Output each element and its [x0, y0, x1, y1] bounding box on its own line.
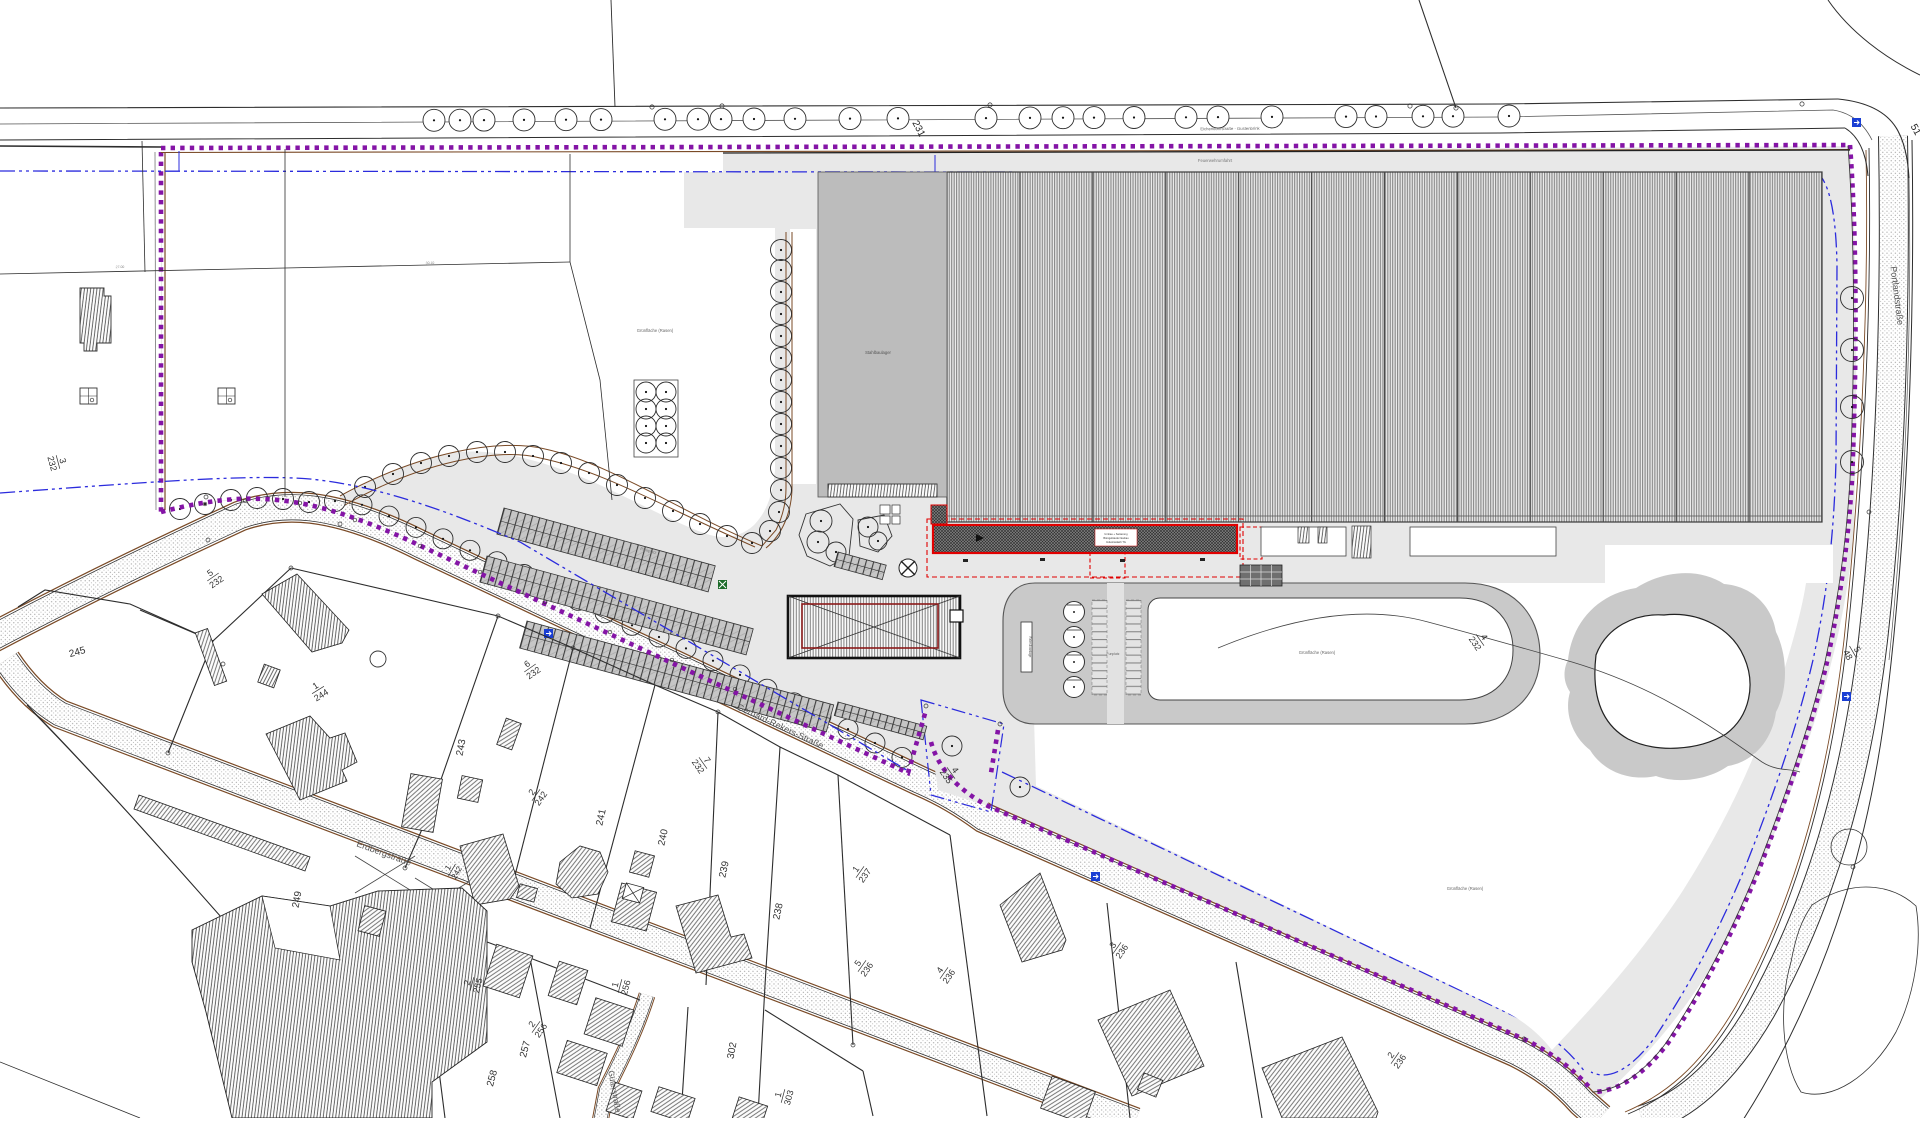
svg-text:Feuerwehrumfahrt: Feuerwehrumfahrt	[1198, 158, 1233, 163]
svg-text:27.00: 27.00	[116, 265, 125, 269]
svg-text:302: 302	[726, 1041, 740, 1060]
svg-text:30.10: 30.10	[426, 261, 435, 265]
svg-text:Fahrsiloanlage: Fahrsiloanlage	[1028, 637, 1032, 658]
svg-text:Umbau + Sanierung: Umbau + Sanierung	[1104, 532, 1128, 536]
svg-text:3: 3	[57, 457, 68, 464]
svg-text:Eichendorffstraße - Gustenbrin: Eichendorffstraße - Gustenbrink	[1200, 126, 1260, 132]
svg-text:241: 241	[594, 808, 608, 827]
svg-text:Grünfläche (Rasen): Grünfläche (Rasen)	[1299, 650, 1336, 655]
svg-text:Funplatz: Funplatz	[1106, 652, 1119, 656]
svg-text:Grünfläche (Rasen): Grünfläche (Rasen)	[1447, 886, 1484, 891]
svg-text:Stahlbaulager: Stahlbaulager	[865, 350, 891, 355]
svg-text:238: 238	[771, 902, 785, 921]
svg-text:1: 1	[773, 1091, 784, 1098]
svg-text:243: 243	[455, 738, 469, 757]
svg-text:Grünfläche (Rasen): Grünfläche (Rasen)	[637, 328, 674, 333]
svg-text:240: 240	[656, 828, 670, 847]
svg-text:245: 245	[68, 645, 87, 660]
svg-text:257: 257	[518, 1039, 533, 1058]
svg-text:1: 1	[610, 981, 621, 988]
svg-text:239: 239	[717, 860, 731, 879]
svg-text:51: 51	[1908, 122, 1920, 137]
svg-text:258: 258	[485, 1068, 500, 1087]
svg-text:Industriedach TG: Industriedach TG	[1106, 540, 1126, 544]
svg-text:Bürogebäude Neubau: Bürogebäude Neubau	[1103, 536, 1129, 540]
